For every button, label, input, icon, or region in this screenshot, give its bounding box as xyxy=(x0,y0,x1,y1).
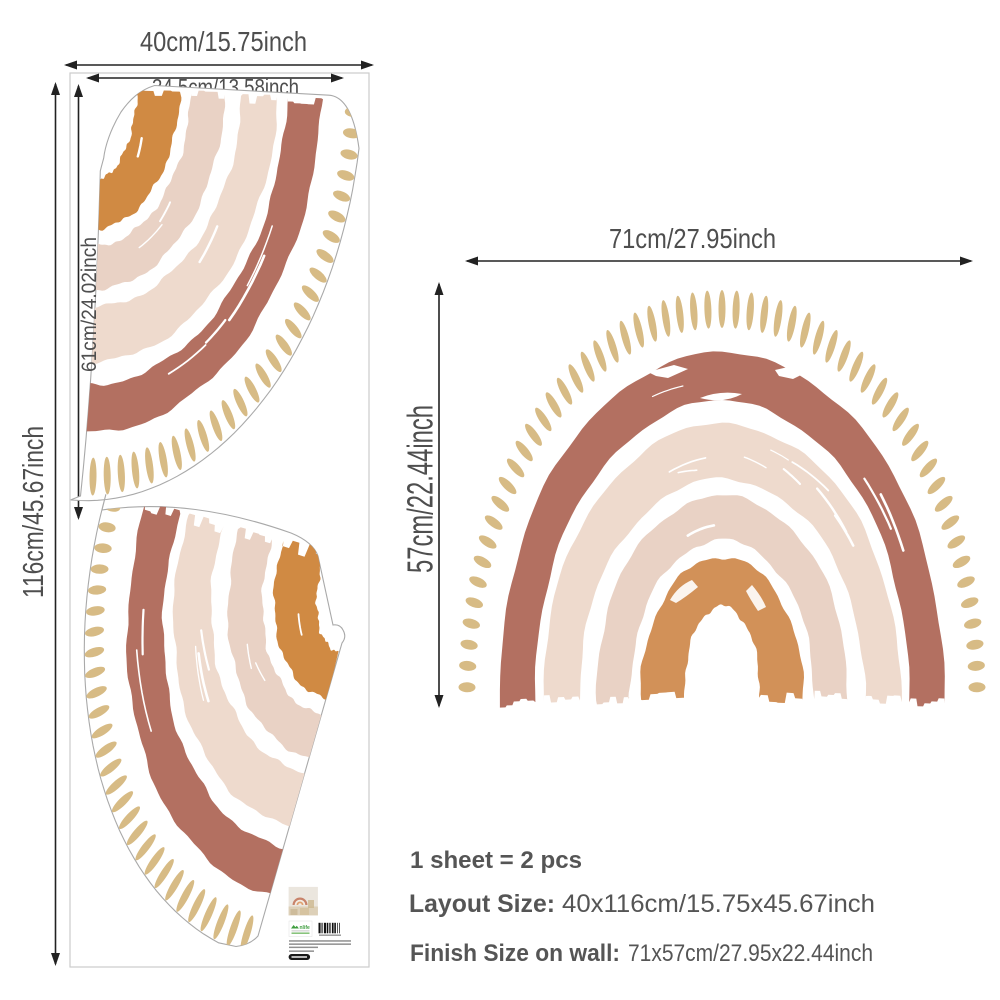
svg-text:Layout Size:: Layout Size: xyxy=(409,890,555,918)
svg-text:61cm/24.02inch: 61cm/24.02inch xyxy=(78,237,101,372)
svg-text:40x116cm/15.75x45.67inch: 40x116cm/15.75x45.67inch xyxy=(562,890,875,918)
svg-text:nlife: nlife xyxy=(300,925,310,931)
svg-text:71cm/27.95inch: 71cm/27.95inch xyxy=(609,223,776,254)
svg-text:57cm/22.44inch: 57cm/22.44inch xyxy=(400,405,441,573)
svg-text:116cm/45.67inch: 116cm/45.67inch xyxy=(18,426,50,598)
svg-text:1 sheet = 2 pcs: 1 sheet = 2 pcs xyxy=(410,847,582,874)
svg-text:40cm/15.75inch: 40cm/15.75inch xyxy=(140,26,307,57)
svg-text:Finish Size on wall:: Finish Size on wall: xyxy=(410,940,620,967)
svg-text:71x57cm/27.95x22.44inch: 71x57cm/27.95x22.44inch xyxy=(628,940,873,967)
